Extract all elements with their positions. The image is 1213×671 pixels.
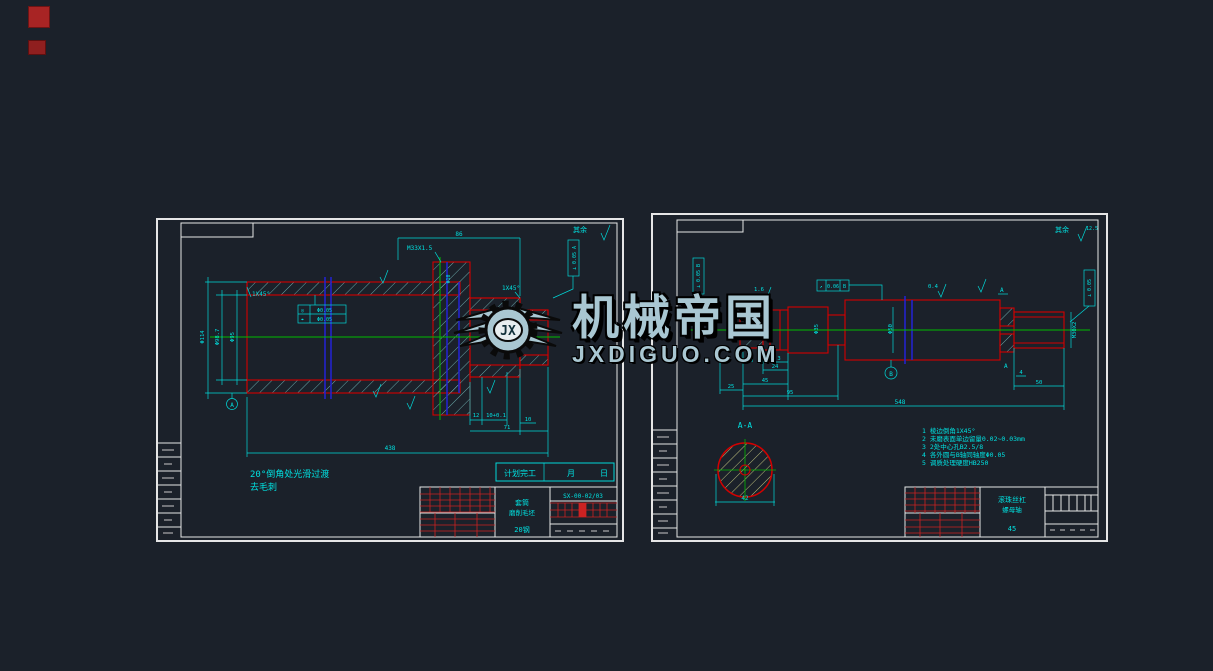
tol-right-box: ⊥ 0.05 A xyxy=(572,246,578,270)
left-title-block: SX-00-02/03 套筒 磨削毛坯 20钢 xyxy=(420,487,617,537)
dim-thread-m30: M30X2 xyxy=(1072,322,1078,339)
tol-left-box: ⊥ 0.05 B xyxy=(696,264,702,288)
title-grid-highlight xyxy=(579,503,586,517)
right-drawing-sheet[interactable]: ⊥ 0.05 B ↗ 0.06 B ⊥ 0.05 1.6 0.4 A A B Φ… xyxy=(650,212,1110,543)
roughness-04: 0.4 xyxy=(928,284,939,290)
dim-4: 4 xyxy=(1019,370,1023,376)
corner-roughness-label: 其余 xyxy=(573,225,587,234)
tol-right-box: ⊥ 0.05 xyxy=(1087,279,1093,297)
tol-mid-val: 0.06 xyxy=(827,284,839,290)
dim-50: 50 xyxy=(1036,380,1043,386)
dim-438: 438 xyxy=(385,445,396,452)
tol-val-2: Φ0.05 xyxy=(317,317,332,323)
dim-548: 548 xyxy=(895,399,906,406)
datum-a1: A xyxy=(1000,287,1004,294)
tol-mid-datum: B xyxy=(843,284,846,290)
right-title-block: 滚珠丝杠 螺母轴 45 xyxy=(905,487,1098,537)
dim-thread: M33X1.5 xyxy=(407,245,433,252)
note-line: 5 调质处理硬度HB250 xyxy=(922,458,988,467)
toolbar-red-swatch-1[interactable] xyxy=(28,6,50,28)
dim-10tol: 10+0.1 xyxy=(486,413,506,419)
tol-mid-sym: ↗ xyxy=(819,284,822,290)
dim-phi114: Φ114 xyxy=(200,330,206,344)
datum-b: B xyxy=(889,371,893,378)
plan-day: 日 xyxy=(600,469,608,478)
process-note-2: 去毛刺 xyxy=(250,481,277,493)
part-name-2: 螺母轴 xyxy=(1002,505,1022,514)
plan-box: 计划完工 月 日 xyxy=(496,463,614,481)
roughness-16: 1.6 xyxy=(754,287,764,293)
corner-roughness-value: 12.5 xyxy=(1086,226,1098,232)
dim-3: 3 xyxy=(777,356,780,362)
dim-12: 12 xyxy=(473,413,480,419)
dim-24: 24 xyxy=(772,364,779,370)
dim-phi95: Φ95 xyxy=(230,332,236,342)
tol-sym-1: ◎ xyxy=(301,308,304,314)
plan-label: 计划完工 xyxy=(504,468,536,478)
dim-95: 95 xyxy=(787,390,794,396)
roughness-icon xyxy=(763,287,771,300)
technical-notes: 1 棱边倒角1X45° 2 未磨表面单边留量0.02~0.03mm 3 2处中心… xyxy=(922,426,1025,467)
section-view-aa: A-A 42 xyxy=(714,421,776,506)
part-name-2: 磨削毛坯 xyxy=(509,508,536,517)
dim-phi98: Φ98.7 xyxy=(215,329,221,346)
note-line: 3 2处中心孔B2.5/8 xyxy=(922,442,983,451)
datum-a-label: A xyxy=(230,402,234,409)
tol-val-1: Φ0.05 xyxy=(317,308,332,314)
dim-chamfer-left: 1X45° xyxy=(252,291,270,298)
dim-45: 45 xyxy=(762,378,769,384)
dim-71: 71 xyxy=(504,425,511,431)
left-drawing-sheet[interactable]: Φ114 Φ98.7 Φ95 1X45° ◎ Φ0.05 ⌖ Φ0.05 86 … xyxy=(155,217,625,543)
material-label: 45 xyxy=(1008,525,1016,533)
corner-roughness-label: 其余 xyxy=(1055,225,1069,234)
note-line: 1 棱边倒角1X45° xyxy=(922,426,975,435)
dim-25: 25 xyxy=(728,384,735,390)
process-note-1: 20°倒角处光滑过渡 xyxy=(250,468,329,480)
plan-month: 月 xyxy=(567,469,575,478)
dim-phi50: Φ50 xyxy=(888,324,894,334)
section-label: A-A xyxy=(738,421,753,430)
cad-canvas[interactable]: Φ114 Φ98.7 Φ95 1X45° ◎ Φ0.05 ⌖ Φ0.05 86 … xyxy=(0,0,1213,671)
tol-sym-2: ⌖ xyxy=(301,317,304,323)
section-dim-42: 42 xyxy=(741,495,749,502)
roughness-icon xyxy=(601,225,610,240)
drawing-number: SX-00-02/03 xyxy=(563,493,603,500)
dim-10: 10 xyxy=(747,358,754,364)
part-name-1: 滚珠丝杠 xyxy=(998,495,1026,504)
datum-a2: A xyxy=(1004,363,1008,370)
dim-phi35: Φ35 xyxy=(814,324,820,334)
note-line: 4 各外圆与B轴同轴度Φ0.05 xyxy=(922,450,1005,459)
part-name-1: 套筒 xyxy=(515,498,529,507)
dim-top-length: 86 xyxy=(455,231,463,238)
toolbar-red-swatch-2[interactable] xyxy=(28,40,46,55)
note-line: 2 未磨表面单边留量0.02~0.03mm xyxy=(922,434,1025,443)
material-label: 20钢 xyxy=(514,525,529,534)
dim-chamfer-right: 1X45° xyxy=(502,285,520,292)
dim-10: 10 xyxy=(525,417,532,423)
dim-phi10: Φ10 xyxy=(446,274,452,283)
roughness-icon xyxy=(938,279,986,297)
left-part-outline xyxy=(210,257,560,420)
